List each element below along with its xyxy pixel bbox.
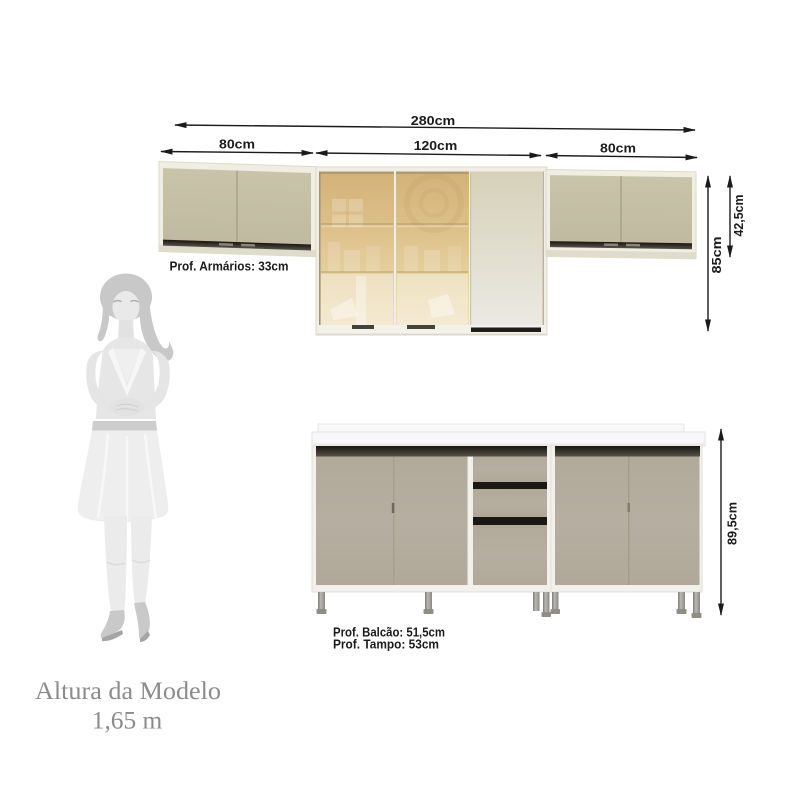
svg-text:85cm: 85cm [709, 237, 724, 274]
svg-text:80cm: 80cm [600, 141, 636, 156]
svg-text:120cm: 120cm [414, 138, 458, 153]
svg-text:89,5cm: 89,5cm [725, 502, 740, 545]
svg-text:Prof. Tampo: 53cm: Prof. Tampo: 53cm [333, 638, 439, 652]
svg-text:Prof. Armários: 33cm: Prof. Armários: 33cm [170, 259, 289, 274]
svg-text:280cm: 280cm [411, 113, 456, 128]
svg-text:Altura da Modelo: Altura da Modelo [35, 678, 221, 705]
svg-text:1,65 m: 1,65 m [92, 708, 163, 735]
svg-text:42,5cm: 42,5cm [731, 195, 746, 237]
svg-text:80cm: 80cm [219, 137, 255, 152]
